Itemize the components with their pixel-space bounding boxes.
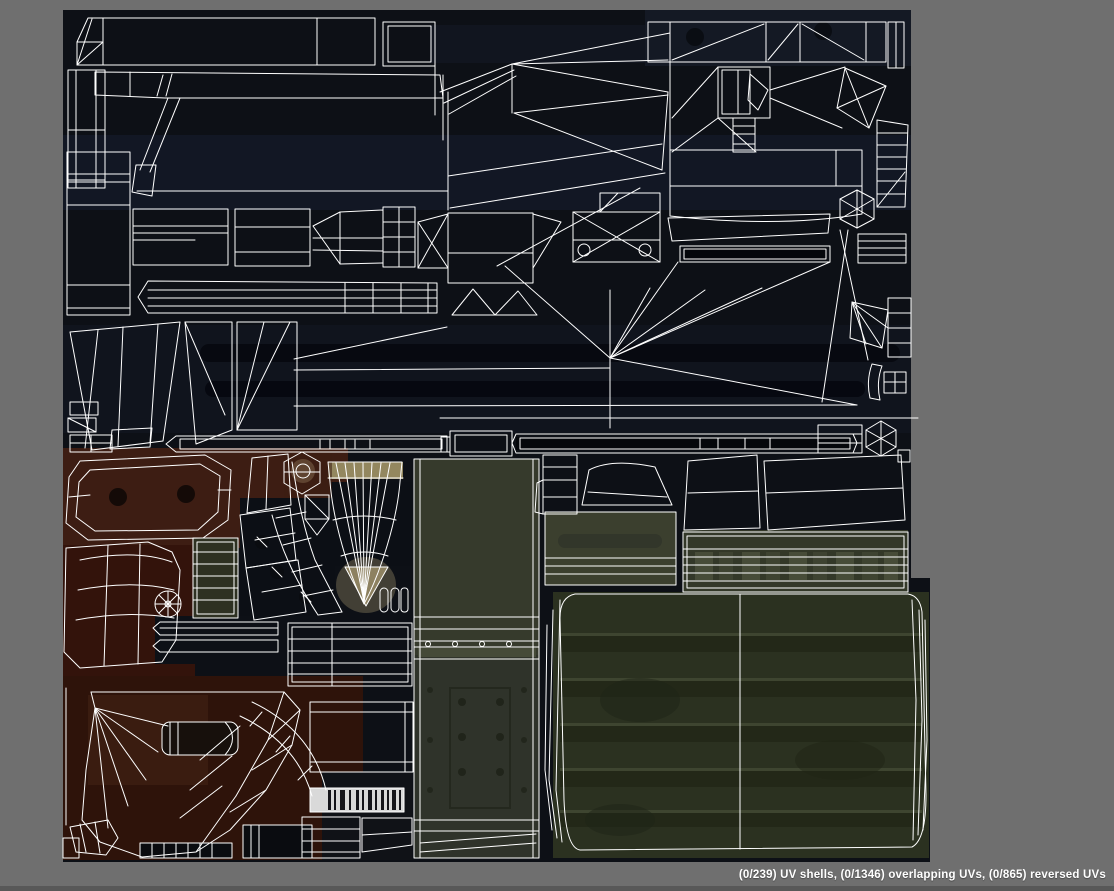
status-text: (0/239) UV shells, (0/1346) overlapping … — [739, 869, 1106, 881]
status-bar: (0/239) UV shells, (0/1346) overlapping … — [0, 869, 1106, 885]
uv-canvas[interactable] — [0, 0, 1114, 891]
window-bottom-edge — [0, 886, 1114, 891]
uv-editor-window: (0/239) UV shells, (0/1346) overlapping … — [0, 0, 1114, 891]
